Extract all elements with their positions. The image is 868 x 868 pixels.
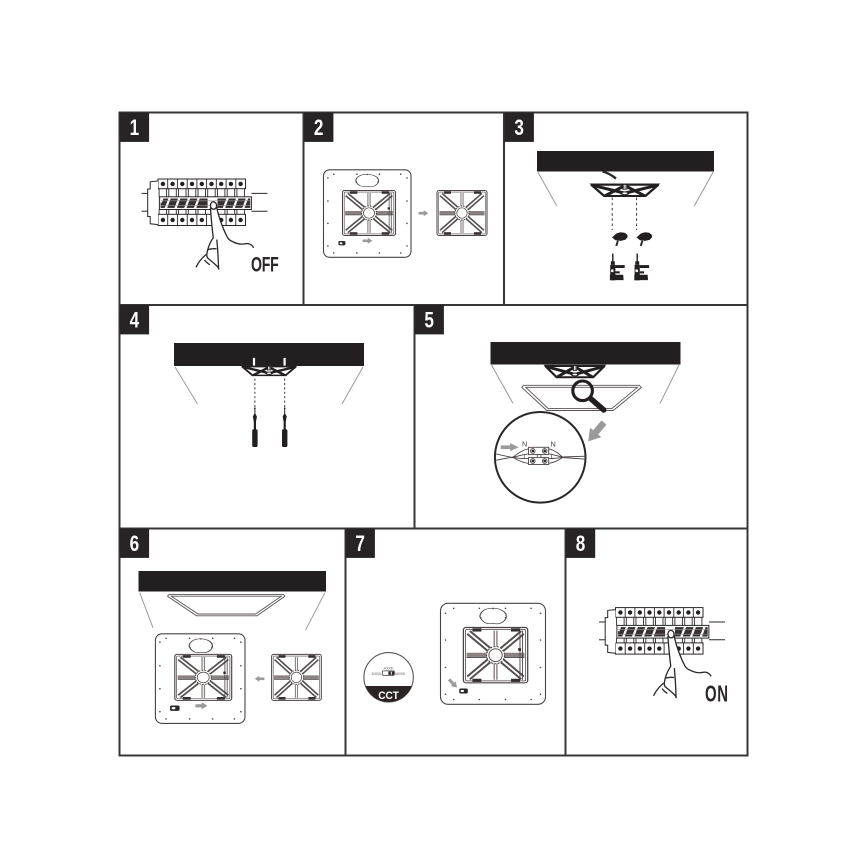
svg-text:L: L bbox=[523, 454, 527, 461]
svg-text:3000K: 3000K bbox=[371, 672, 382, 676]
svg-text:7: 7 bbox=[355, 532, 365, 557]
svg-text:2: 2 bbox=[314, 116, 324, 141]
svg-text:ON: ON bbox=[705, 681, 729, 707]
svg-text:6500K: 6500K bbox=[395, 672, 406, 676]
svg-text:N: N bbox=[522, 440, 527, 449]
svg-text:8: 8 bbox=[576, 532, 586, 557]
svg-text:L: L bbox=[551, 454, 555, 461]
svg-text:4: 4 bbox=[130, 309, 140, 334]
svg-text:4000K: 4000K bbox=[384, 666, 395, 670]
svg-text:3: 3 bbox=[514, 116, 524, 141]
svg-text:CCT: CCT bbox=[378, 689, 399, 701]
svg-text:6: 6 bbox=[130, 532, 140, 557]
svg-text:OFF: OFF bbox=[251, 253, 279, 277]
svg-text:N: N bbox=[551, 440, 556, 449]
svg-text:1: 1 bbox=[130, 116, 140, 141]
svg-text:5: 5 bbox=[424, 309, 434, 334]
